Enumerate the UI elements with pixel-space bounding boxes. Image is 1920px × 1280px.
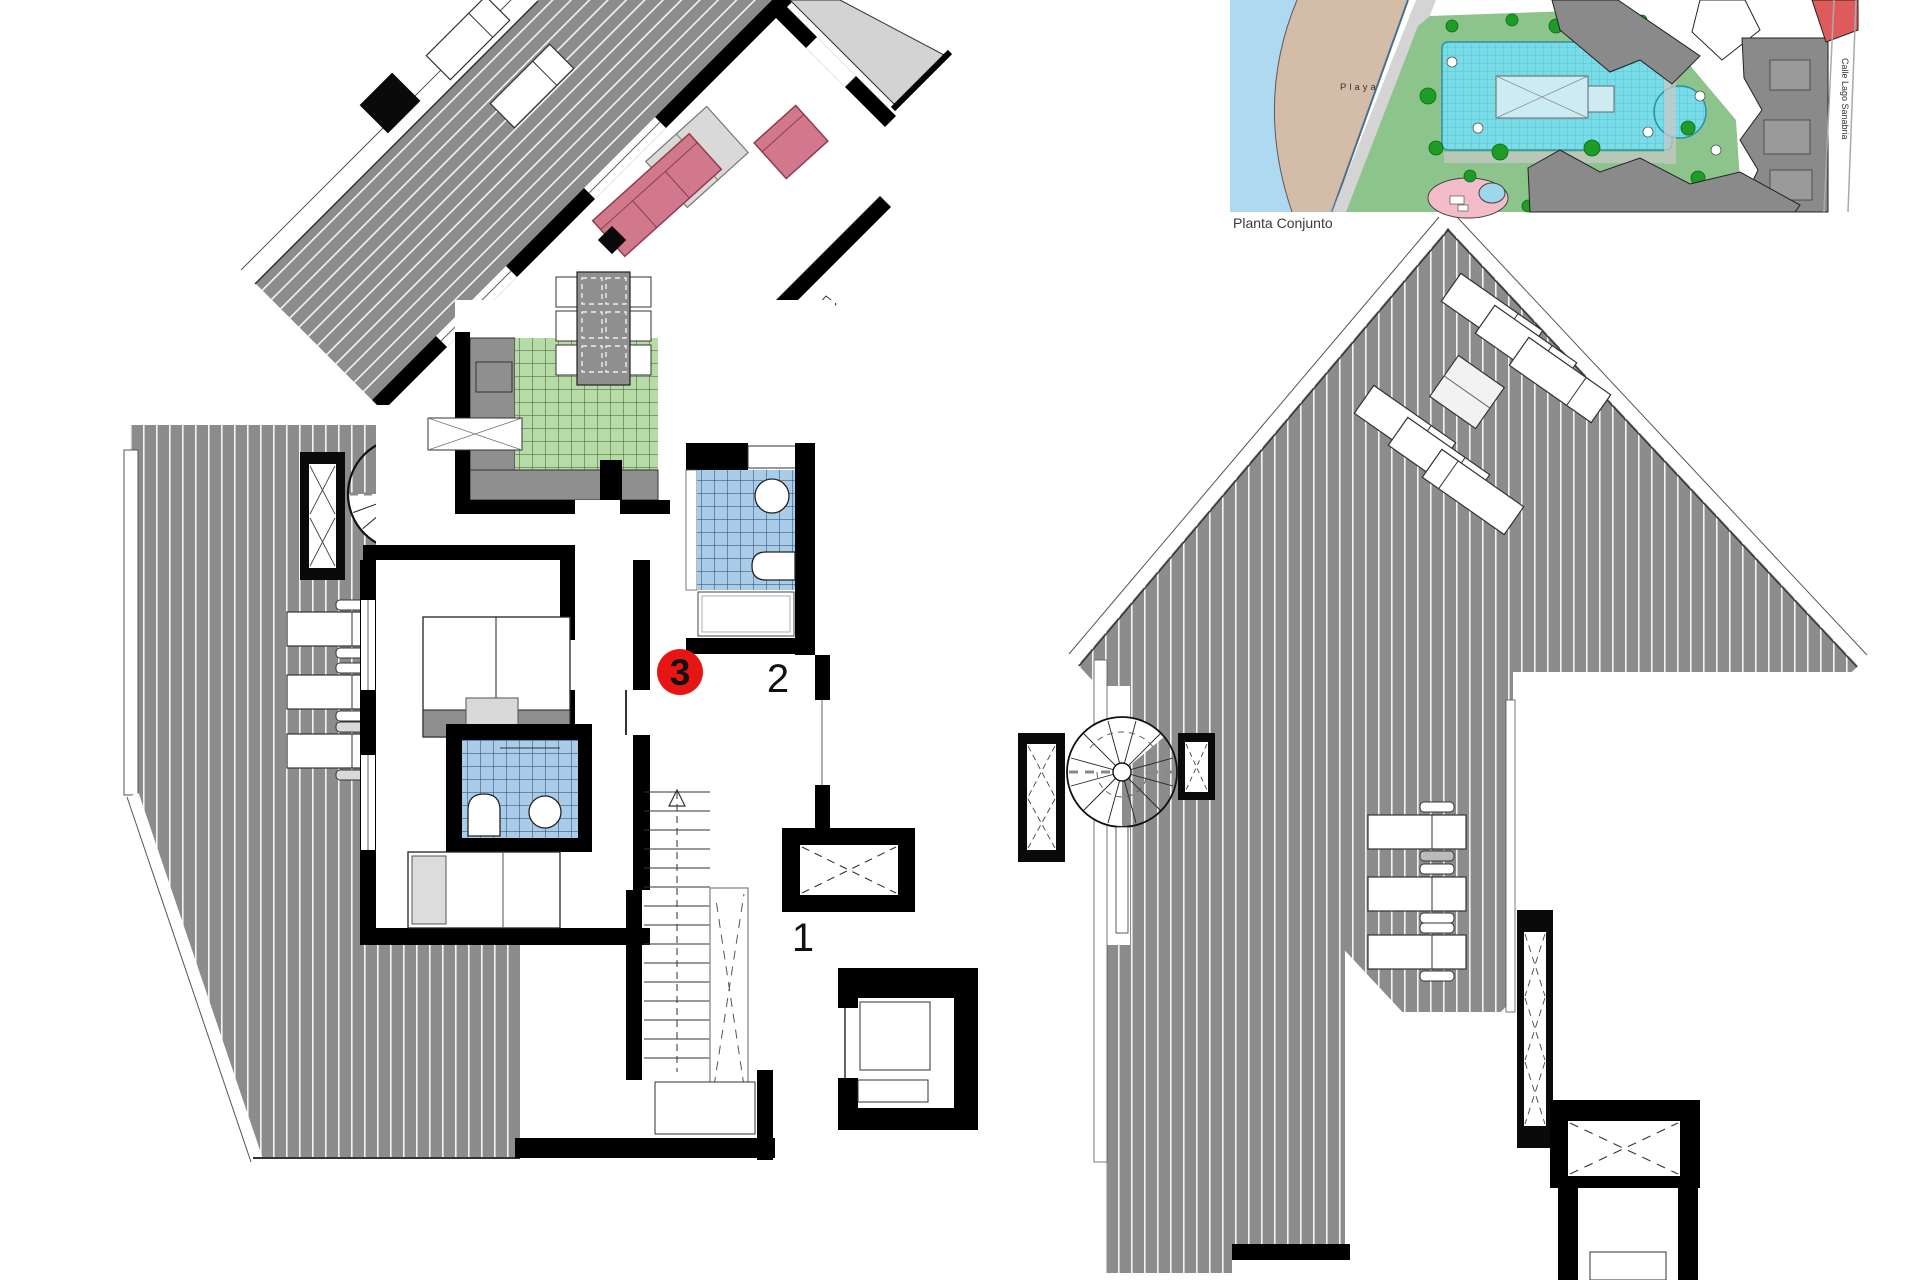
planter [1178,733,1215,800]
room-number-2: 2 [767,657,789,701]
elevator [1550,1100,1700,1188]
wall [446,838,592,852]
storage-room [838,968,978,1130]
street-label: Calle Lago Sanabria [1840,58,1850,140]
wall [446,735,462,845]
wall [446,724,592,740]
toilet [468,794,500,836]
beach-label: Playa [1340,82,1379,93]
wall [686,443,748,470]
wall [363,545,560,560]
bathroom-upper [686,443,815,655]
bed-pillow [412,856,446,924]
floorplan-sheet: 3 2 1 [0,0,1920,1280]
door-opening [633,690,650,735]
unit-badge: 3 [657,649,703,695]
deck-planter-box [360,73,421,134]
stair-stringer [1116,827,1128,933]
spa [1428,178,1508,218]
shower [698,592,794,636]
sink [529,796,561,828]
left-floorplan: 3 2 1 [124,0,980,1162]
door-opening [575,500,620,514]
unit-badge-number: 3 [670,652,691,693]
room-number-1: 1 [792,916,814,960]
inset-caption: Planta Conjunto [1233,215,1333,231]
cabinet [748,446,800,468]
wall [795,443,815,655]
right-floorplan [1002,217,1920,1280]
site-plan-inset: Playa Calle Lago Sanabria Planta Conjunt… [1230,0,1858,231]
right-wall [815,655,830,830]
door-opening [838,1008,858,1078]
planter [300,452,345,580]
wall [578,735,592,845]
wall [600,460,622,500]
wall [360,928,650,945]
window [686,470,697,590]
planter [1018,733,1065,862]
kitchen-counter [470,470,658,500]
building-red [1812,0,1858,42]
sun-lounger-row [1368,802,1466,981]
dining-table [577,272,630,385]
wall [686,638,815,654]
bathroom-lower [446,724,592,852]
wall [515,1138,775,1158]
toilet [752,552,795,580]
deck-bottom-edge [1232,1244,1350,1280]
elevator [782,828,915,912]
sink [755,479,789,513]
terrace-railing [124,450,138,795]
stair-shaft [1558,1188,1698,1280]
wall [626,890,642,1080]
dining-set [556,272,651,385]
planter [1517,910,1553,1148]
wall [455,500,670,514]
